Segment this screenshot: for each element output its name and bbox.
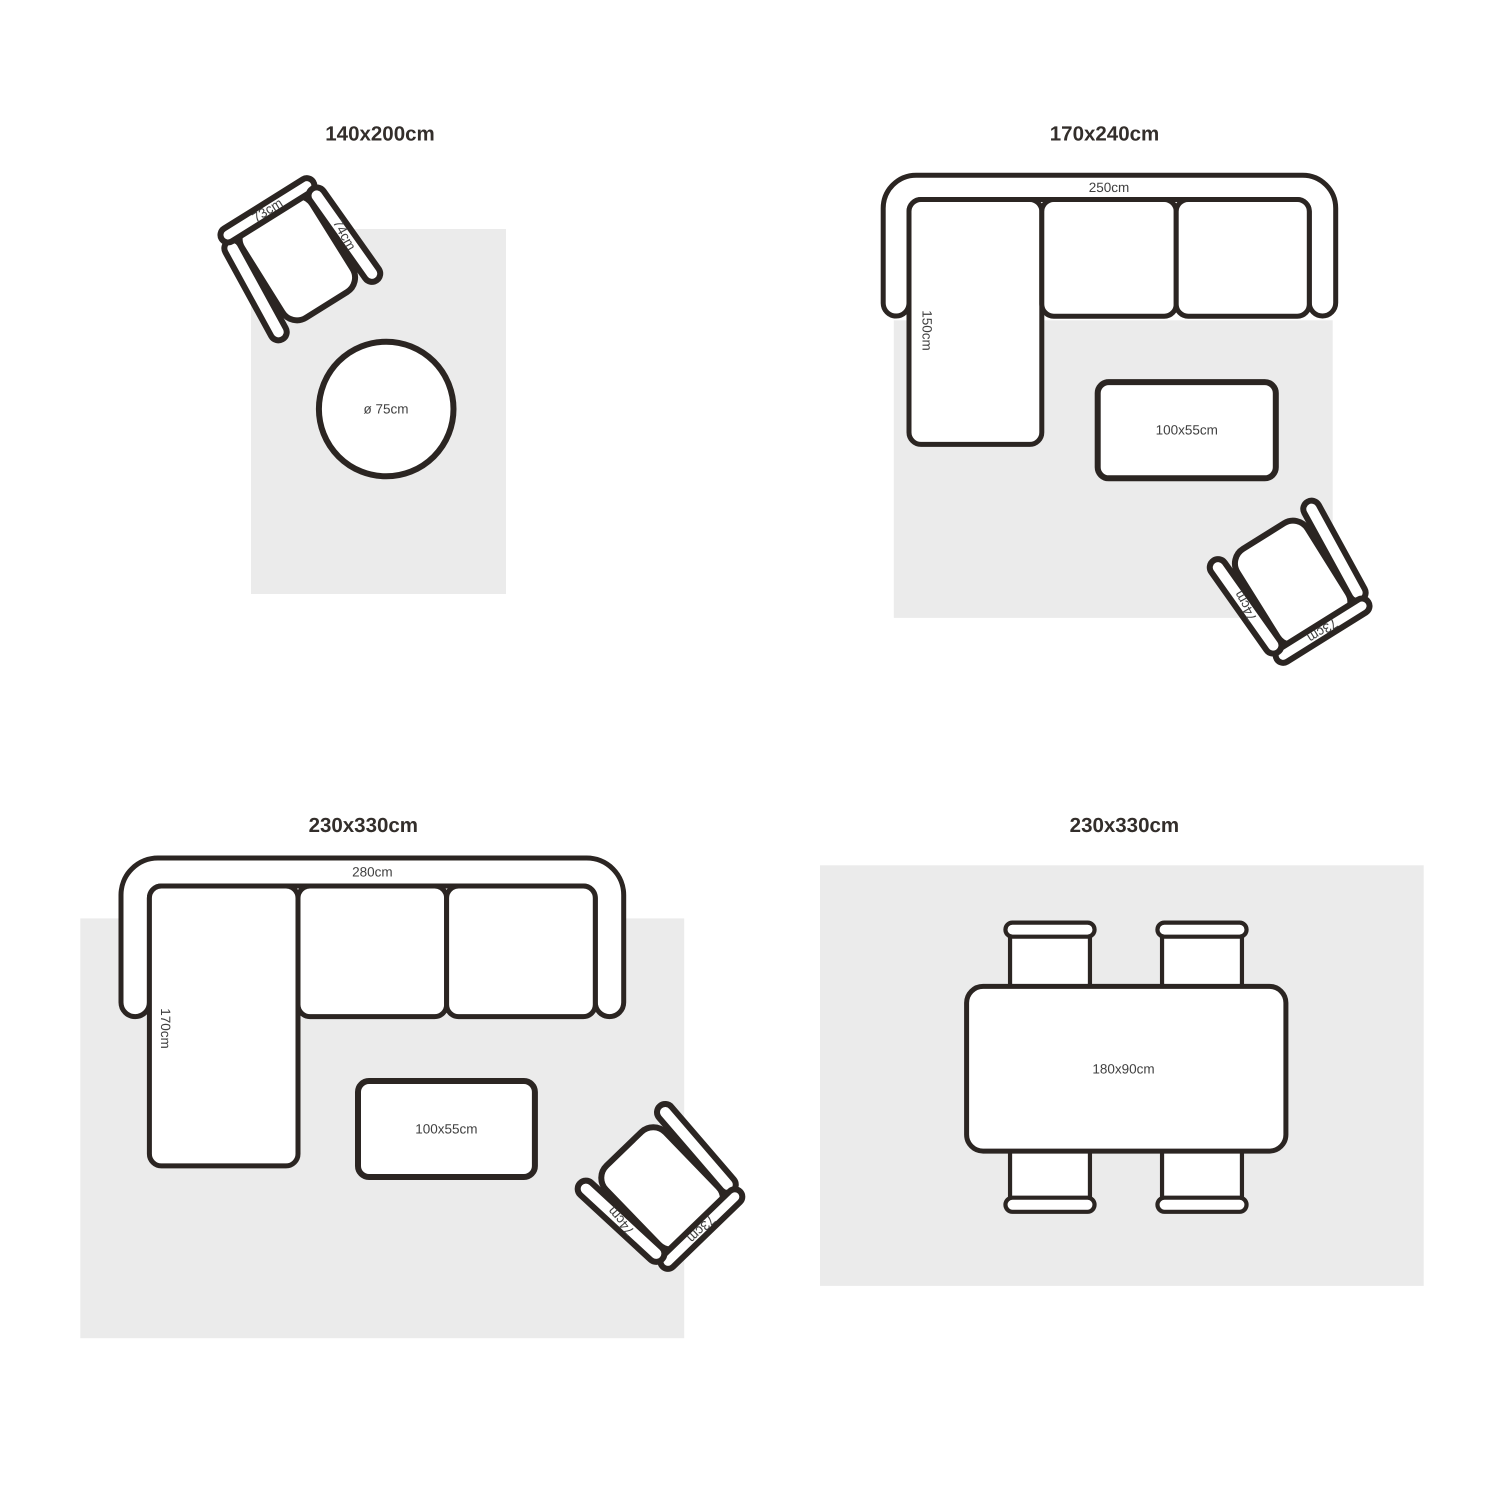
svg-text:180x90cm: 180x90cm [1092, 1062, 1154, 1077]
svg-text:ø 75cm: ø 75cm [363, 402, 408, 417]
svg-text:230x330cm: 230x330cm [309, 814, 418, 837]
svg-text:230x330cm: 230x330cm [1070, 814, 1179, 837]
svg-text:170x240cm: 170x240cm [1050, 123, 1159, 146]
svg-text:100x55cm: 100x55cm [1156, 423, 1218, 438]
svg-text:170cm: 170cm [158, 1008, 173, 1049]
svg-text:280cm: 280cm [352, 865, 393, 880]
svg-text:250cm: 250cm [1089, 180, 1130, 195]
svg-text:150cm: 150cm [920, 310, 935, 351]
svg-text:100x55cm: 100x55cm [415, 1122, 477, 1137]
svg-text:140x200cm: 140x200cm [325, 123, 434, 146]
